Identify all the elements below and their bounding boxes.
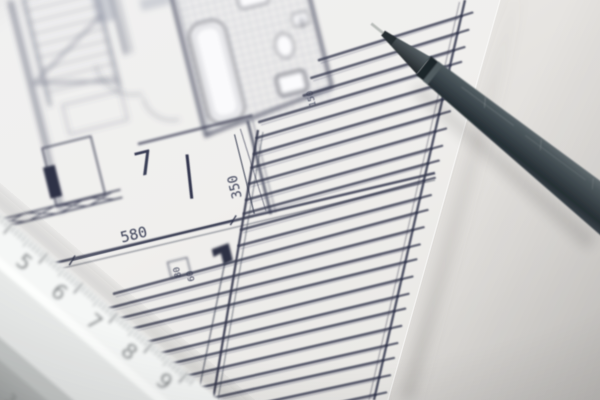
scene-svg: 90 7 580 <box>0 0 600 400</box>
photo-floorplan-scene: 90 7 580 <box>0 0 600 400</box>
